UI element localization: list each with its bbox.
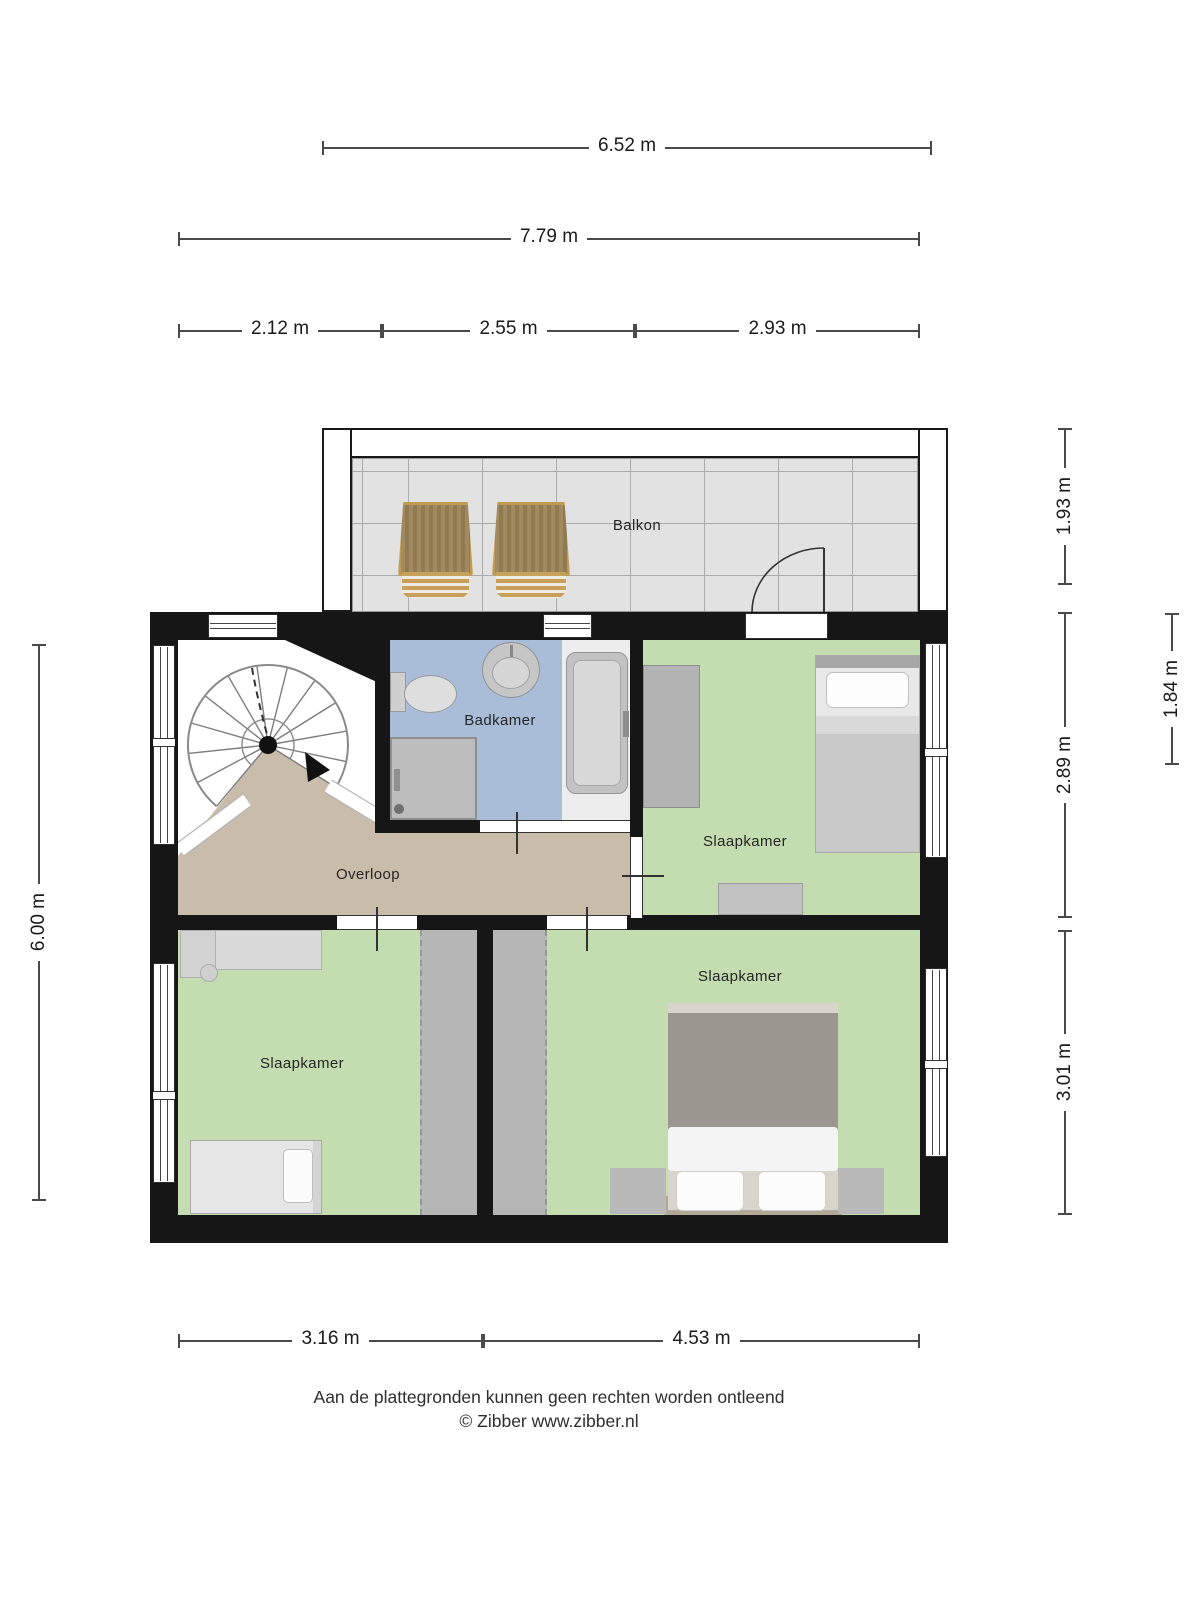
dim-label: 7.79 m: [511, 226, 587, 248]
knee-wall-strip-right: [493, 930, 547, 1215]
door-mark: [586, 907, 588, 951]
dimension-upper-depth: 2.89 m: [1058, 612, 1072, 918]
dim-label: 4.53 m: [663, 1328, 739, 1350]
double-bed: [668, 1003, 838, 1210]
window-right-upper: [925, 643, 947, 858]
stair-direction-arrow: [305, 752, 330, 782]
window-mullion: [925, 748, 947, 757]
floorplan-page: 6.52 m 7.79 m 2.12 m 2.55 m 2.93 m 3.16 …: [0, 0, 1200, 1600]
dimension-total-width: 7.79 m: [178, 232, 920, 246]
bathroom-label: Badkamer: [440, 712, 560, 729]
bed-blanket-fold: [816, 716, 919, 734]
bed-sheet-fold: [668, 1127, 838, 1171]
dimension-bottom-right: 4.53 m: [483, 1334, 920, 1348]
balcony-railing-right: [918, 428, 948, 612]
footer-disclaimer: Aan de plattegronden kunnen geen rechten…: [149, 1387, 949, 1408]
dim-label: 2.55 m: [470, 318, 546, 340]
pillow: [283, 1149, 313, 1203]
bed-duvet: [668, 1013, 838, 1131]
balcony-railing-left: [322, 428, 352, 612]
window-bathroom: [543, 614, 592, 638]
wall-landing-south-b: [417, 915, 547, 930]
wall-bedrooms-divider-h: [627, 915, 920, 930]
dimension-height-total: 6.00 m: [32, 644, 46, 1201]
dimension-width-left: 2.12 m: [178, 324, 382, 338]
wall-exterior-bottom: [150, 1215, 948, 1243]
nightstand: [838, 1168, 884, 1214]
door-mark: [516, 812, 518, 854]
dim-label: 6.52 m: [589, 135, 665, 157]
dimension-bottom-left: 3.16 m: [178, 1334, 483, 1348]
dim-label: 2.93 m: [739, 318, 815, 340]
landing-label: Overloop: [308, 866, 428, 883]
bed-headboard: [313, 1141, 321, 1213]
door-mark: [376, 907, 378, 951]
window-top-left: [208, 614, 278, 638]
toilet-bowl: [404, 675, 457, 713]
balcony-railing-top: [322, 428, 948, 458]
bathtub-basin: [573, 660, 621, 786]
sink: [482, 642, 540, 698]
balcony-door-swing: [700, 530, 840, 615]
dim-label: 2.12 m: [242, 318, 318, 340]
dimension-width-right: 2.93 m: [635, 324, 920, 338]
footer-copyright: © Zibber www.zibber.nl: [149, 1411, 949, 1432]
shower-drain: [394, 804, 404, 814]
dimension-balcony-depth: 1.93 m: [1058, 428, 1072, 585]
wardrobe: [643, 665, 700, 808]
shower: [390, 737, 477, 820]
window-mullion: [153, 1091, 175, 1100]
dresser: [718, 883, 803, 915]
bed-blanket: [816, 716, 919, 852]
window-left-lower: [153, 963, 175, 1183]
sink-basin: [492, 657, 530, 689]
nightstand: [610, 1168, 666, 1214]
wall-landing-south-a: [178, 915, 337, 930]
bedroom-left-label: Slaapkamer: [232, 1055, 372, 1072]
dimension-bed-depth: 1.84 m: [1165, 613, 1179, 765]
desk-chair: [200, 964, 218, 982]
dim-label: 2.89 m: [1054, 727, 1076, 803]
balcony-door-opening: [745, 613, 828, 639]
shower-fitting: [394, 769, 400, 791]
bathtub: [566, 652, 628, 794]
balcony-label: Balkon: [577, 517, 697, 534]
lounge-chair: [398, 502, 473, 599]
dim-label: 1.84 m: [1161, 651, 1183, 727]
window-mullion: [153, 738, 175, 747]
opening-bathtub-zone: [557, 820, 630, 833]
dim-label: 1.93 m: [1054, 468, 1076, 544]
window-left-upper: [153, 645, 175, 845]
door-opening-bedroom-left: [337, 915, 417, 930]
pillow: [758, 1171, 826, 1211]
single-bed-left: [190, 1140, 322, 1214]
chair-seat: [398, 502, 473, 576]
dim-label: 3.01 m: [1054, 1034, 1076, 1110]
dimension-width-mid: 2.55 m: [382, 324, 635, 338]
chair-slats: [496, 572, 566, 598]
chair-seat: [492, 502, 570, 576]
single-bed-top: [815, 655, 920, 853]
dim-label: 3.16 m: [292, 1328, 368, 1350]
door-opening-bedroom-right: [547, 915, 627, 930]
lounge-chair: [492, 502, 570, 599]
door-mark: [622, 875, 664, 877]
dim-line: [324, 147, 589, 149]
window-mullion: [925, 1060, 947, 1069]
pillow: [826, 672, 909, 708]
wall-bedrooms-divider-v: [477, 930, 493, 1215]
door-opening-bathroom: [480, 820, 557, 833]
dim-label: 6.00 m: [28, 884, 50, 960]
wall-bathroom-west: [375, 640, 390, 833]
wall-bathroom-south: [375, 820, 480, 833]
knee-wall-strip-left: [420, 930, 477, 1215]
dimension-balcony-width: 6.52 m: [322, 141, 932, 155]
wall-bedroom-top-west: [630, 612, 643, 837]
bed-headboard: [816, 656, 919, 668]
bedroom-right-label: Slaapkamer: [670, 968, 810, 985]
dimension-lower-depth: 3.01 m: [1058, 930, 1072, 1215]
bedroom-top-label: Slaapkamer: [675, 833, 815, 850]
window-right-lower: [925, 968, 947, 1157]
pillow: [676, 1171, 744, 1211]
door-opening-bedroom-top: [630, 837, 643, 918]
chair-slats: [402, 572, 469, 598]
bathtub-faucet: [623, 711, 629, 737]
sink-faucet: [510, 645, 513, 657]
